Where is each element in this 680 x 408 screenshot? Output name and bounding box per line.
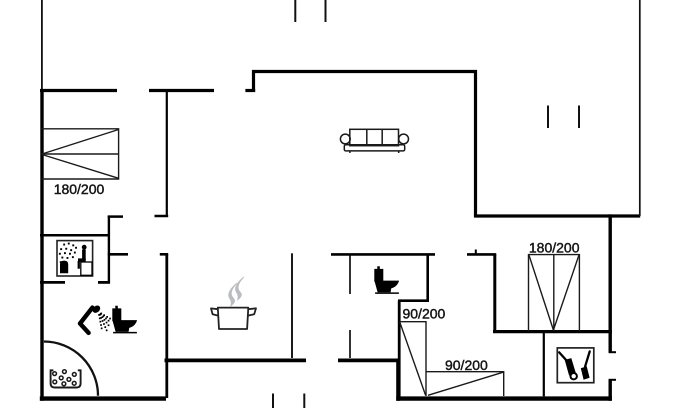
svg-text:180/200: 180/200 [54, 181, 105, 197]
svg-text:90/200: 90/200 [402, 305, 445, 321]
svg-text:90/200: 90/200 [445, 357, 488, 373]
svg-text:180/200: 180/200 [529, 239, 580, 255]
